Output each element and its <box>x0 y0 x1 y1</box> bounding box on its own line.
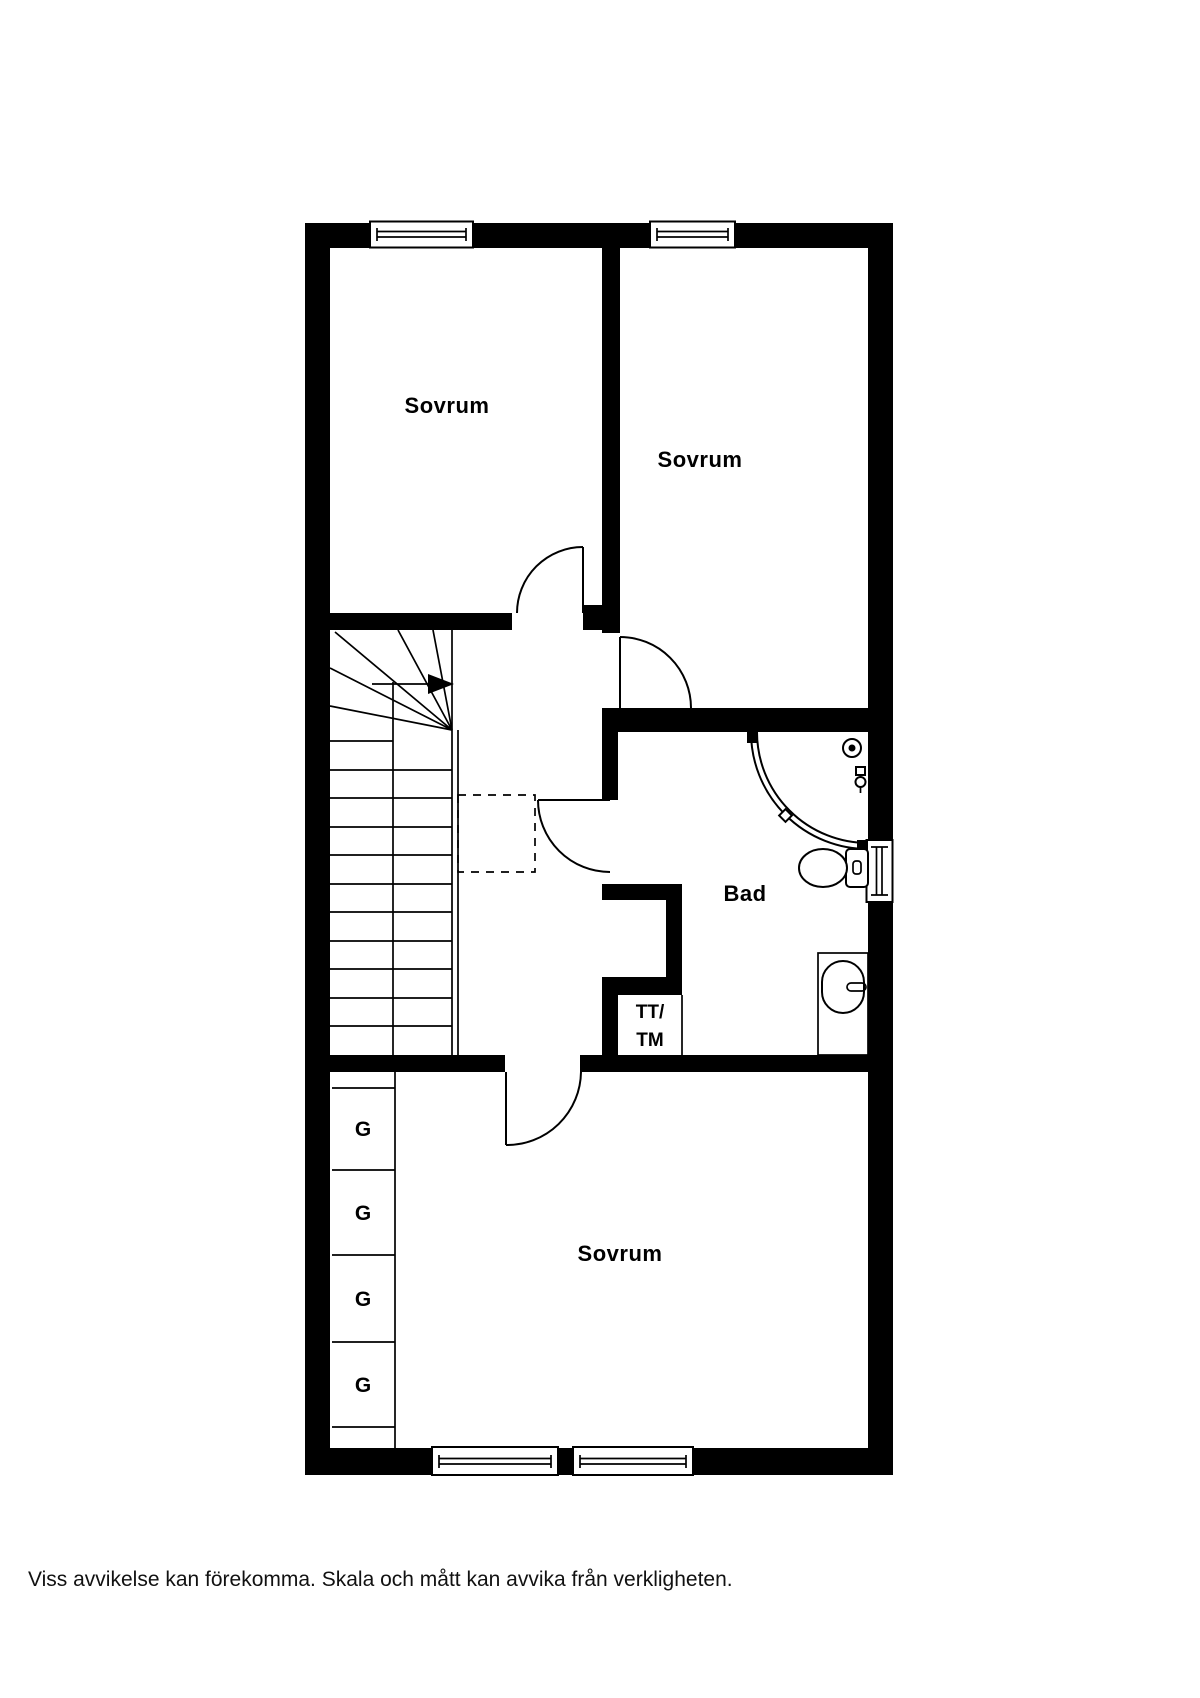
sink-bowl <box>822 961 864 1013</box>
wardrobe-label: G <box>355 1118 371 1141</box>
floor-plan-page: G G G G Sovrum Sovrum Bad Sovrum TT/ TM … <box>0 0 1200 1698</box>
shower-mixer-knob <box>856 777 866 787</box>
window-frame <box>370 222 473 248</box>
wardrobe-label: G <box>355 1202 371 1225</box>
shower-icon <box>747 732 868 850</box>
wardrobe-label: G <box>355 1288 371 1311</box>
room-label-bedroom-top-left: Sovrum <box>405 393 490 418</box>
window-icon-top-left <box>370 222 473 248</box>
stairs-treads <box>330 741 452 1026</box>
wall-bathroom-north <box>602 708 868 732</box>
door-icon-bedroom-top-left <box>517 547 583 613</box>
toilet-tank <box>846 849 868 887</box>
wall-bottom-bedroom-north-right <box>580 1055 868 1072</box>
window-icon-bottom-left <box>432 1447 558 1475</box>
laundry-label-line2: TM <box>636 1030 663 1051</box>
door-swing-arc <box>506 1072 581 1145</box>
stairs-opening-dashed-outline <box>458 795 535 872</box>
door-icon-bedroom-bottom <box>506 1072 581 1145</box>
door-swing-arc <box>620 637 691 708</box>
toilet-icon <box>799 849 868 887</box>
shower-head-dot <box>849 745 856 752</box>
floor-plan: G G G G Sovrum Sovrum Bad Sovrum TT/ TM <box>0 0 1200 1698</box>
wardrobe-label: G <box>355 1374 371 1397</box>
wall-niche-top <box>602 977 682 995</box>
sink-icon <box>818 953 868 1055</box>
room-label-bedroom-bottom: Sovrum <box>578 1241 663 1266</box>
wall-bedroom-divider <box>602 248 620 633</box>
wall-z-horizontal <box>602 884 682 900</box>
stairs <box>330 630 535 1055</box>
disclaimer-text: Viss avvikelse kan förekomma. Skala och … <box>28 1568 733 1592</box>
window-frame <box>867 840 893 902</box>
wall-niche-left <box>602 995 618 1057</box>
room-label-bathroom: Bad <box>723 881 766 906</box>
window-icon-top-right <box>650 222 735 248</box>
wall-bedroom-tl-south <box>330 613 512 630</box>
door-icon-bathroom <box>538 800 610 872</box>
wall-bottom-bedroom-north-left <box>330 1055 505 1072</box>
door-swing-arc <box>517 547 583 613</box>
shower-post-top <box>747 732 757 743</box>
window-frame <box>432 1447 558 1475</box>
wall-bathroom-west <box>602 732 618 800</box>
wall-stub <box>583 605 602 630</box>
shower-mixer-body <box>856 767 865 775</box>
door-swing-arc <box>538 800 610 872</box>
window-icon-bottom-right <box>573 1447 693 1475</box>
door-icon-bedroom-top-right <box>620 637 691 708</box>
wall-left <box>305 223 330 1475</box>
arrow-head <box>428 674 454 694</box>
window-frame <box>573 1447 693 1475</box>
wall-z-vertical <box>666 900 682 977</box>
wardrobe-cabinets: G G G G <box>332 1072 395 1448</box>
toilet-bowl <box>799 849 847 887</box>
interior-walls <box>330 248 868 1072</box>
window-icon-bathroom-right <box>867 840 893 902</box>
room-label-bedroom-top-right: Sovrum <box>658 447 743 472</box>
window-frame <box>650 222 735 248</box>
laundry-label-line1: TT/ <box>636 1002 665 1023</box>
stairs-right-edge <box>452 630 458 1055</box>
